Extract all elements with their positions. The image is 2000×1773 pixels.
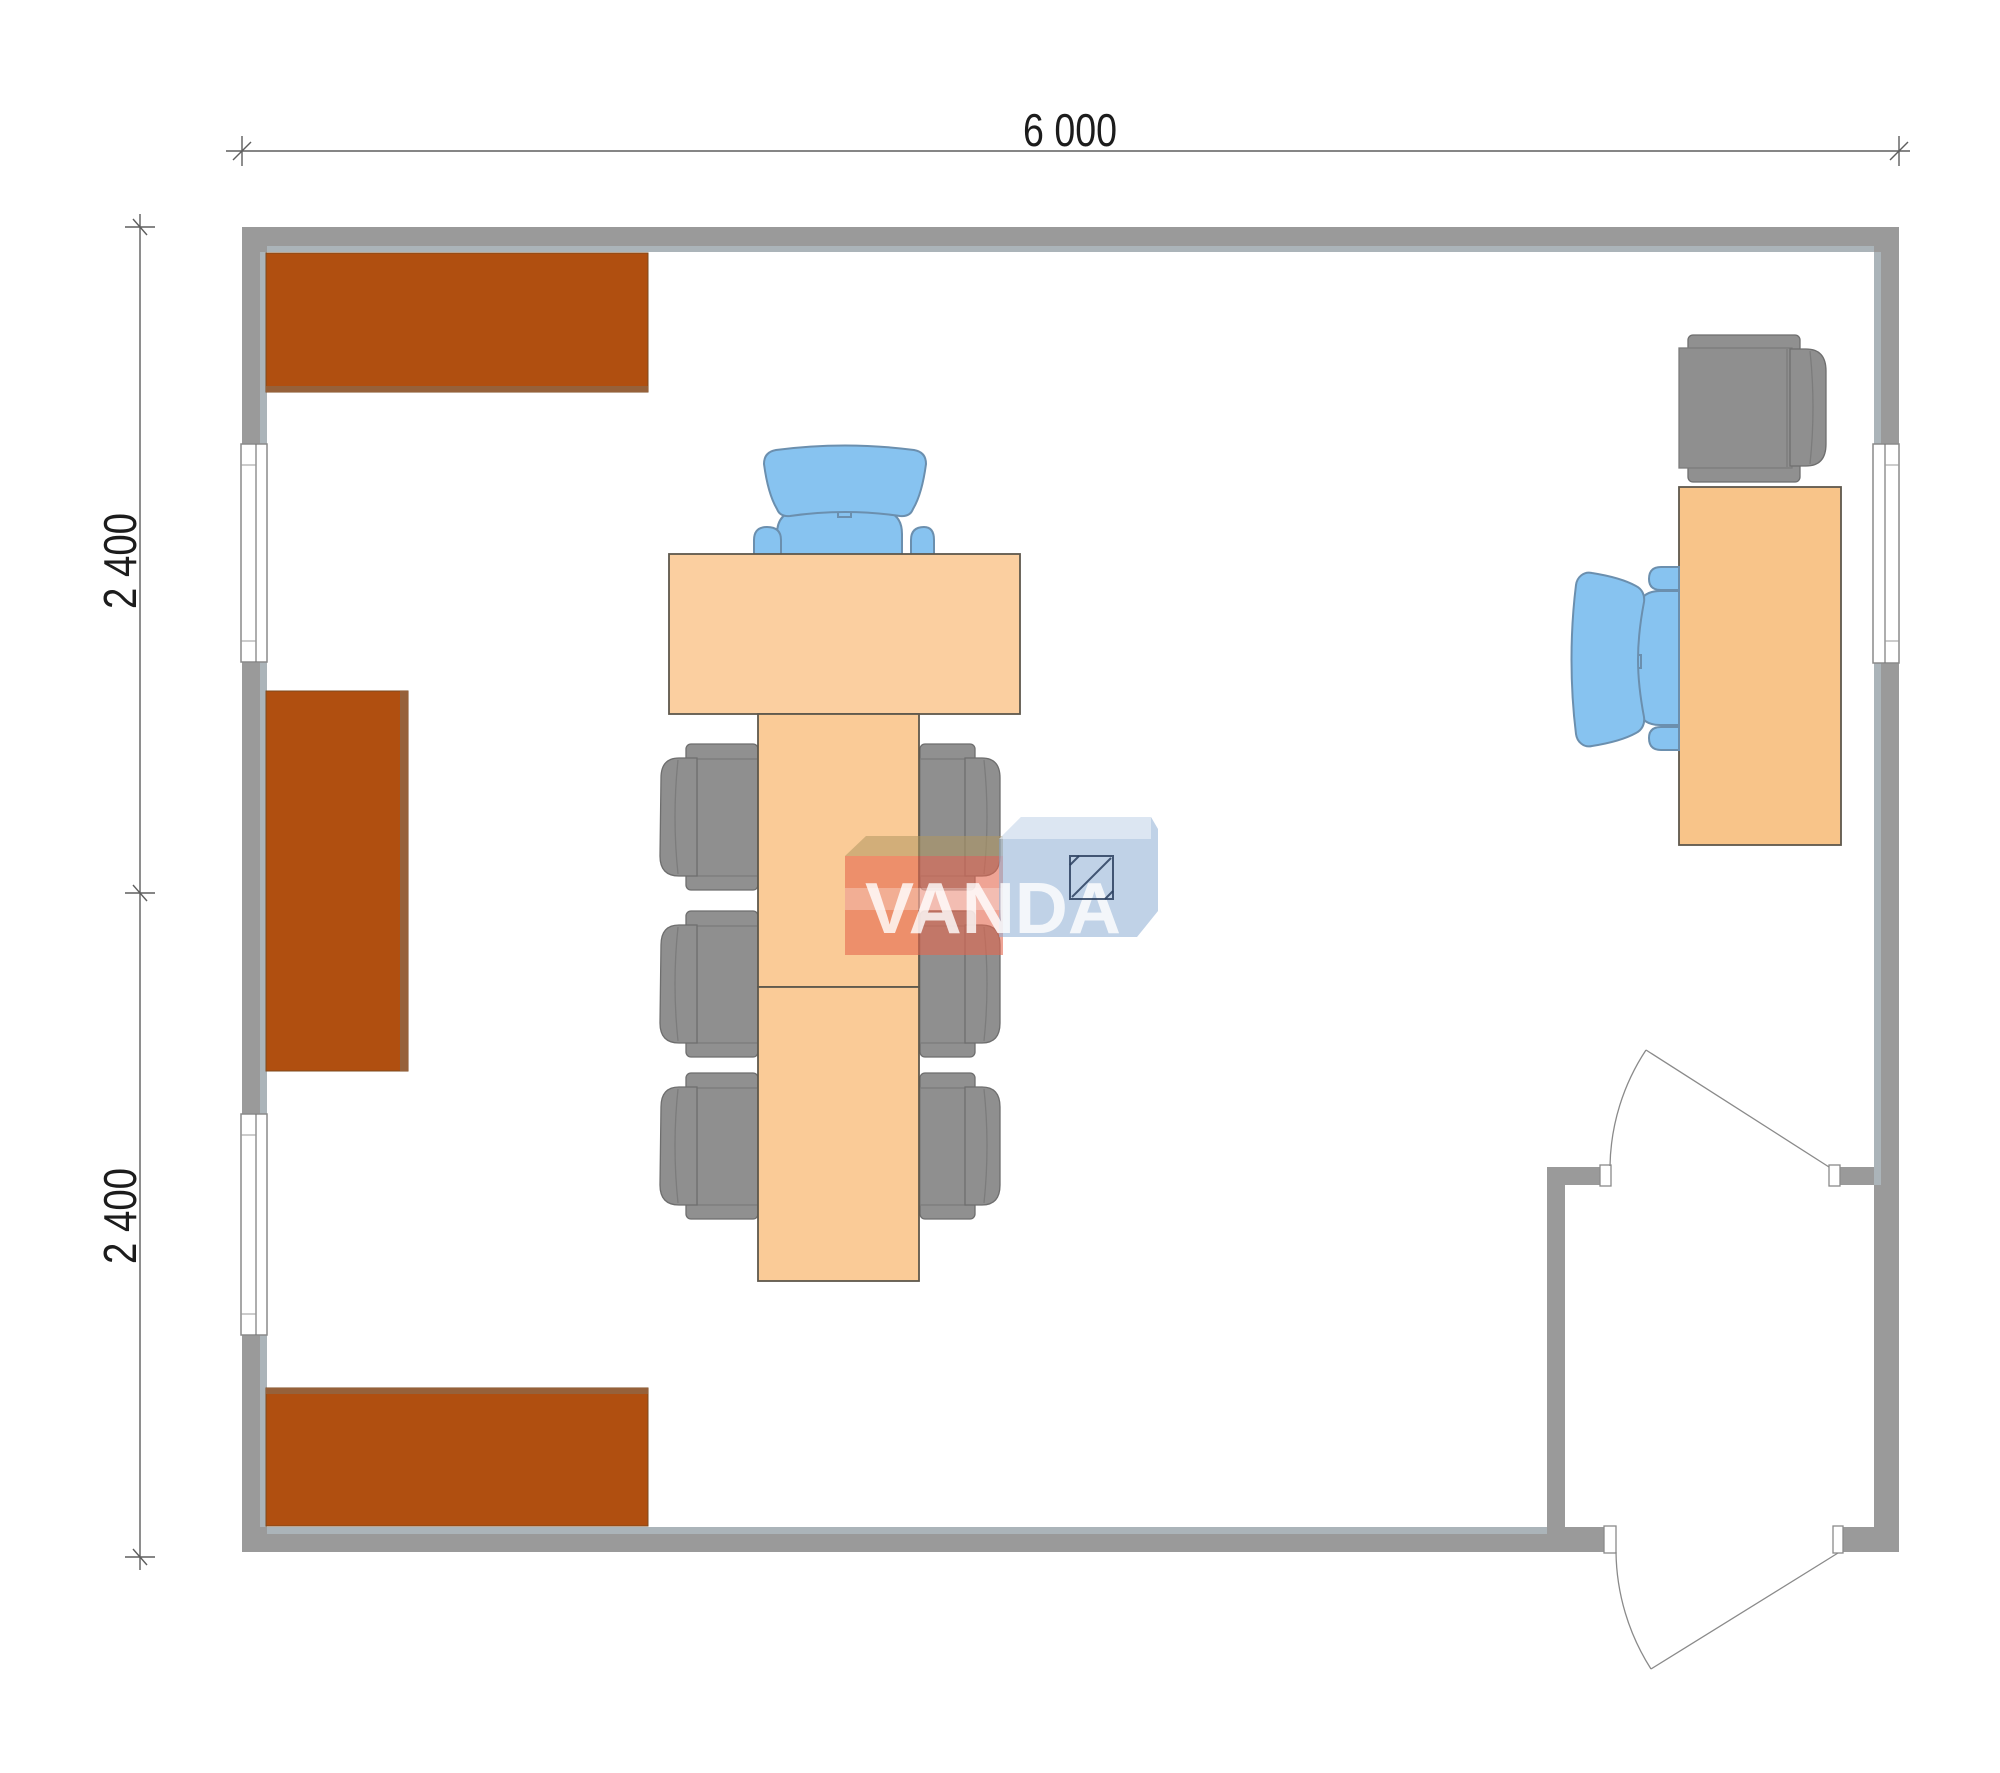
svg-text:2 400: 2 400 — [94, 1168, 146, 1264]
svg-text:VANDA: VANDA — [865, 869, 1121, 949]
svg-text:6 000: 6 000 — [1023, 104, 1117, 156]
svg-text:2 400: 2 400 — [94, 513, 146, 609]
